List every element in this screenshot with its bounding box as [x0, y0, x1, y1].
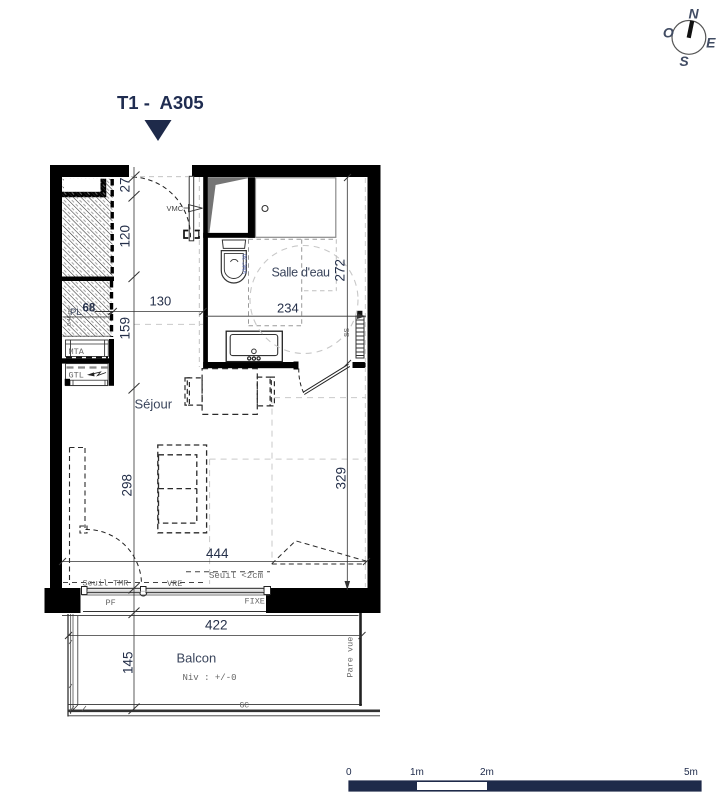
svg-text:SS: SS: [344, 327, 352, 337]
svg-text:O: O: [663, 24, 674, 40]
svg-text:120: 120: [118, 225, 133, 248]
svg-text:Seuil TMR: Seuil TMR: [83, 579, 129, 589]
svg-text:Pare vue: Pare vue: [346, 637, 356, 678]
svg-text:145: 145: [120, 651, 135, 674]
svg-text:422: 422: [205, 618, 228, 633]
svg-text:GC: GC: [240, 702, 250, 711]
svg-text:S: S: [679, 53, 689, 69]
svg-text:0: 0: [346, 767, 352, 778]
svg-text:VMC: VMC: [167, 204, 184, 213]
svg-text:1m: 1m: [410, 767, 424, 778]
svg-text:MTA: MTA: [69, 347, 85, 357]
svg-text:T1 - A305: T1 - A305: [117, 92, 204, 113]
svg-text:329: 329: [333, 467, 348, 490]
svg-text:N: N: [688, 6, 699, 22]
svg-text:VMC 30: VMC 30: [243, 254, 249, 274]
svg-text:Séjour: Séjour: [135, 397, 173, 412]
svg-text:234: 234: [277, 301, 299, 316]
svg-text:Salle d'eau: Salle d'eau: [272, 266, 331, 280]
svg-text:5m: 5m: [684, 767, 698, 778]
svg-text:2m: 2m: [480, 767, 494, 778]
svg-text:Niv : +/-0: Niv : +/-0: [183, 673, 237, 683]
svg-text:GTL: GTL: [69, 370, 84, 380]
svg-text:PF: PF: [106, 598, 116, 608]
svg-text:130: 130: [150, 294, 172, 309]
svg-text:Balcon: Balcon: [177, 651, 217, 666]
svg-text:444: 444: [206, 546, 229, 561]
svg-text:FIXE: FIXE: [245, 597, 265, 607]
svg-text:E: E: [706, 35, 716, 51]
svg-text:272: 272: [333, 259, 348, 282]
svg-text:27: 27: [118, 177, 133, 192]
svg-text:159: 159: [118, 317, 133, 340]
svg-text:Seuil <2cm: Seuil <2cm: [209, 571, 263, 581]
svg-text:VRE: VRE: [167, 579, 182, 589]
svg-text:68: 68: [83, 303, 96, 315]
svg-text:0.46 m²: 0.46 m²: [67, 307, 73, 326]
svg-text:298: 298: [120, 474, 135, 497]
